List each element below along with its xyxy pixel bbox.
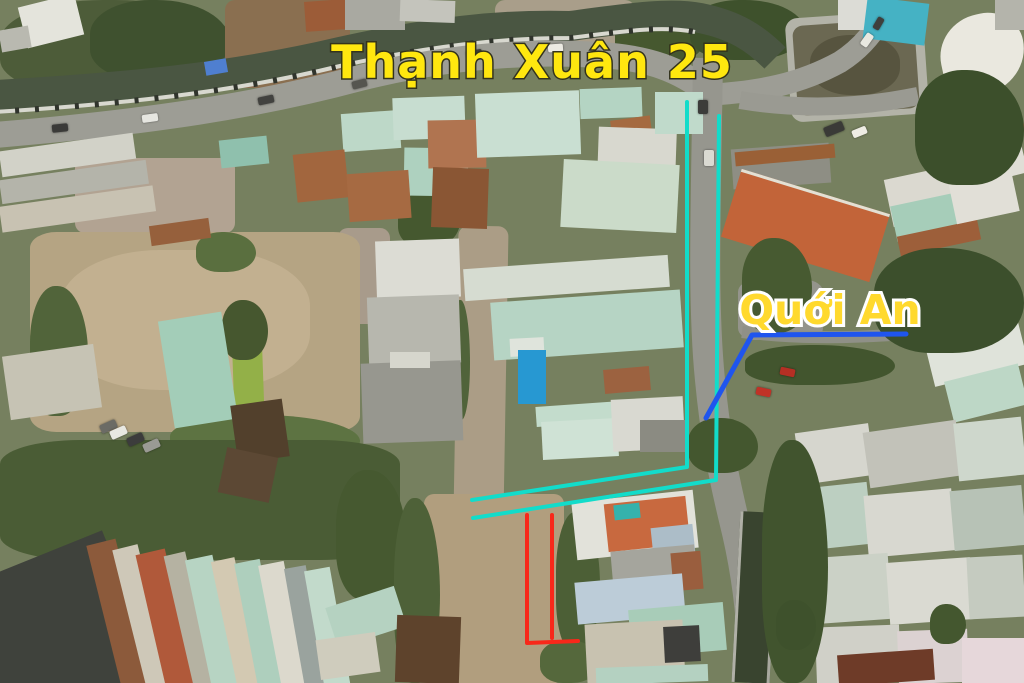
building-roof: [613, 503, 640, 521]
car: [52, 123, 69, 133]
building-roof: [431, 167, 489, 229]
building-roof: [219, 136, 270, 169]
building-roof: [390, 352, 430, 368]
building-roof: [361, 360, 464, 443]
building-roof: [953, 417, 1024, 482]
aerial-photo: Thạnh Xuân 25 Quới An: [0, 0, 1024, 683]
rooftop-terrace: [863, 488, 956, 557]
tree-canopy: [688, 418, 758, 473]
concrete-pad: [2, 344, 102, 420]
building-roof: [400, 0, 456, 23]
building-roof: [837, 649, 935, 683]
building-roof: [541, 418, 619, 460]
building-roof: [995, 0, 1024, 30]
building-roof: [962, 638, 1024, 683]
building-roof: [346, 170, 411, 222]
tree-canopy: [915, 70, 1024, 185]
building-roof: [579, 87, 642, 119]
tree-canopy: [742, 238, 812, 333]
building-roof: [316, 632, 381, 680]
building-roof: [345, 0, 405, 30]
building-roof: [475, 90, 581, 158]
building-roof: [596, 664, 709, 683]
building-roof: [395, 615, 461, 683]
blue-roof-panel: [518, 350, 546, 404]
side-road-east: [740, 96, 918, 106]
building-roof: [293, 149, 350, 202]
building-roof: [966, 555, 1024, 620]
car: [704, 150, 714, 166]
tree-canopy: [776, 600, 816, 650]
building-roof: [375, 239, 461, 300]
building-roof: [560, 159, 679, 233]
car: [698, 100, 708, 114]
tree-canopy: [874, 248, 1024, 353]
building-roof: [640, 420, 686, 452]
tree-canopy: [930, 604, 966, 644]
building-roof: [950, 485, 1024, 551]
building-roof: [655, 92, 703, 134]
building-roof: [603, 366, 651, 394]
car: [548, 43, 564, 52]
building-roof: [663, 625, 701, 663]
